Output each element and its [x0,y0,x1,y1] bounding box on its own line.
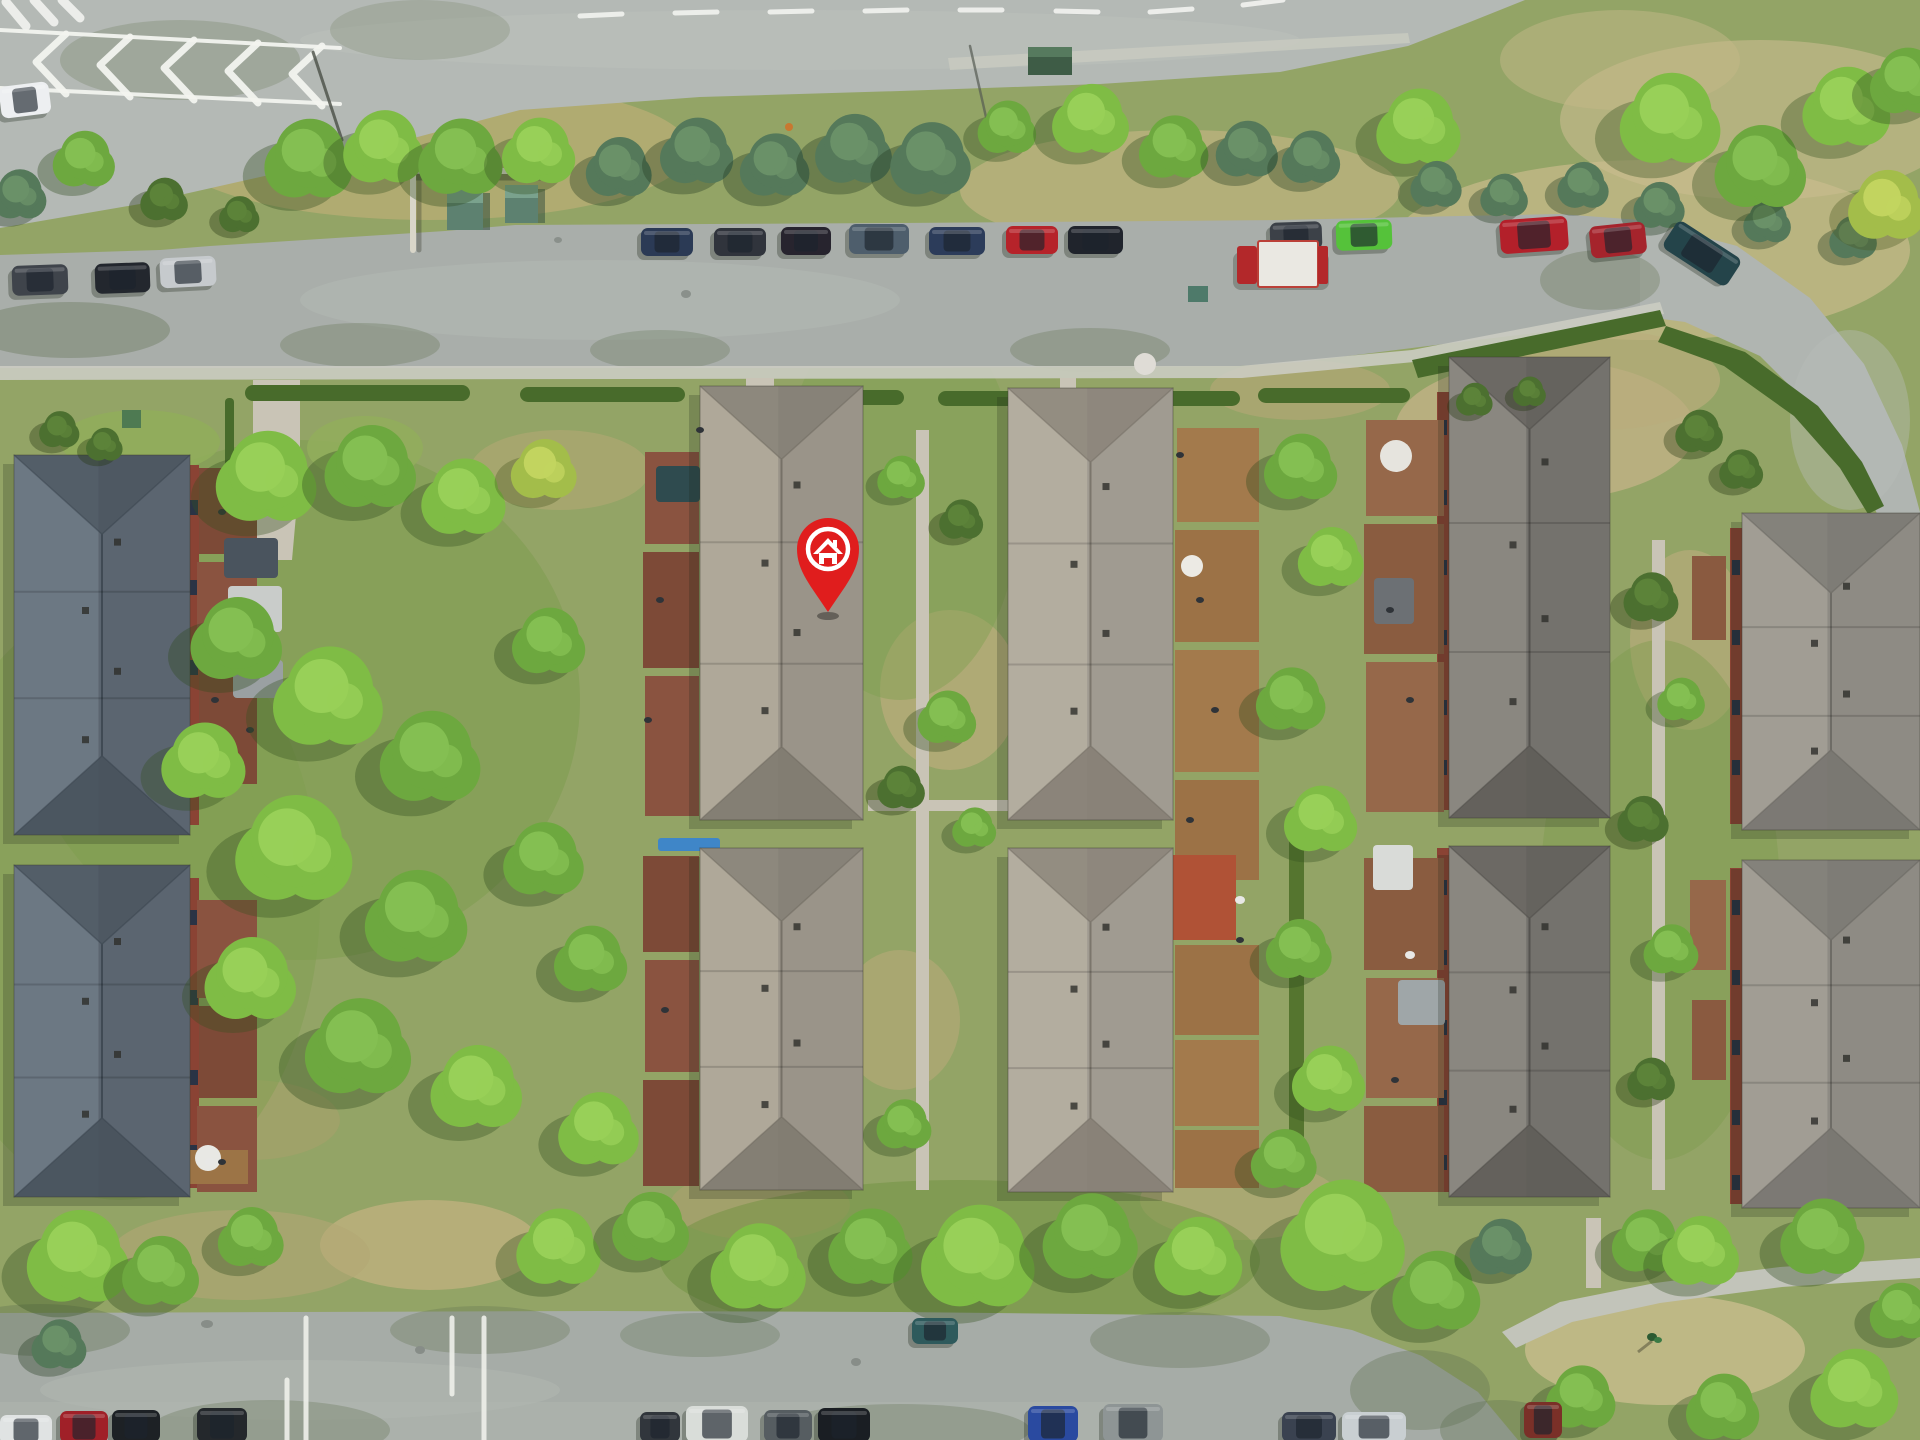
hedge [245,385,470,401]
roof-vent [82,736,89,743]
parked-car [1520,1402,1562,1440]
patio-umbrella [1134,353,1156,375]
utility-box [1188,286,1208,302]
roof-vent [1811,999,1818,1006]
roof-vent [1843,583,1850,590]
parked-car [777,227,831,259]
roof-vent [794,1040,801,1047]
roof-vent [82,607,89,614]
hedge [1258,388,1410,403]
tree-shadow-on-road [1090,1312,1270,1368]
parked-car [1338,1412,1406,1440]
townhouse-roof [997,848,1173,1201]
roof-vent [1510,986,1517,993]
roof-vent [1811,640,1818,647]
patio-canopy [1398,980,1445,1025]
utility-box [483,193,490,230]
parked-car [710,228,766,260]
townhouse-roof [689,848,863,1199]
roof-vent [794,629,801,636]
roof-vent [1542,615,1549,622]
patio-furniture [1386,607,1394,613]
parked-car [1099,1404,1163,1440]
roof-vent [1542,1043,1549,1050]
parked-car [7,264,68,300]
aerial-photo [0,0,1920,1440]
utility-box [1028,47,1072,57]
patio-canopy [1373,845,1413,890]
parked-car [814,1408,870,1440]
roof-vent [1510,541,1517,548]
roof-vent [1843,1055,1850,1062]
roof-vent [1510,698,1517,705]
deck [1692,556,1726,640]
patio-furniture [661,1007,669,1013]
dashed-lane-line [675,12,717,13]
patio-furniture [1406,697,1414,703]
window [190,1070,198,1085]
townhouse-roof [997,388,1173,829]
roof-vent [114,1051,121,1058]
manhole [201,1320,213,1328]
parked-car [636,1412,680,1440]
deck [1175,1040,1259,1126]
roof-vent [1843,937,1850,944]
parked-car [155,256,217,293]
patio-furniture [1176,452,1184,458]
parked-car [908,1318,958,1348]
patio-furniture [218,1159,226,1165]
patio-furniture [644,717,652,723]
parked-car [90,262,150,298]
patio-table [1235,896,1245,904]
parked-car [0,1415,52,1440]
roof-vent [1103,924,1110,931]
patio-furniture [1391,1077,1399,1083]
parked-car [1024,1406,1078,1440]
roof-vent [114,539,121,546]
deck [1177,428,1259,522]
patio-furniture [1211,707,1219,713]
dashed-lane-line [1056,11,1098,12]
deck [1692,1000,1726,1080]
dashed-lane-line [1150,9,1192,12]
deck [1175,530,1259,642]
roof-vent [1103,483,1110,490]
townhouse-roof [3,865,190,1206]
parked-car [108,1410,160,1440]
roof-vent [794,481,801,488]
roof-vent [82,1111,89,1118]
patio-table [1405,951,1415,959]
utility-box [122,410,141,428]
window [190,580,198,595]
parked-car [845,224,909,258]
aerial-scene [0,0,1920,1440]
parked-car [56,1411,108,1440]
patio-furniture [1196,597,1204,603]
patio-umbrella [1380,440,1412,472]
deck [1366,662,1444,812]
roof-vent [1510,1106,1517,1113]
patio-umbrella [1181,555,1203,577]
roof-vent [1542,458,1549,465]
roof-vent [762,1101,769,1108]
patio-canopy [1374,578,1414,624]
roof-vent [1843,691,1850,698]
patio-furniture [696,427,704,433]
tree-shadow-on-road [590,330,730,370]
parked-car [760,1410,812,1440]
roof-vent [1542,923,1549,930]
parked-car [682,1406,748,1440]
manhole [415,1346,425,1354]
dashed-lane-line [770,11,812,12]
delivery-truck [1233,241,1329,290]
parked-car [1064,226,1123,258]
patio-furniture [1186,817,1194,823]
roof-vent [762,707,769,714]
parked-car [1585,221,1648,263]
roof-vent [762,560,769,567]
manhole [554,237,562,243]
roof-vent [1103,630,1110,637]
patio-furniture [211,697,219,703]
parked-car [1495,216,1569,259]
roof-vent [114,938,121,945]
delivery-truck-part [1258,241,1318,287]
townhouse-roof [1438,357,1610,827]
roof-vent [794,923,801,930]
deck [1172,855,1236,940]
roof-vent [114,668,121,675]
roof-vent [1071,561,1078,568]
parked-car [1002,226,1058,258]
parked-car [193,1408,247,1440]
roof-vent [82,998,89,1005]
fire-hydrant [785,123,793,131]
hedge [520,387,685,402]
manhole [681,290,691,298]
patio-table [205,1158,215,1166]
window [190,910,198,925]
parked-car [1331,219,1392,255]
parked-car [637,228,693,260]
townhouse-roof [1731,860,1920,1217]
deck [1175,945,1259,1035]
roof-vent [1811,748,1818,755]
parked-car [1278,1412,1336,1440]
roof-vent [1103,1041,1110,1048]
hydrant [785,123,793,131]
patio-furniture [1236,937,1244,943]
roof-vent [1071,708,1078,715]
townhouse-roof [1731,513,1920,839]
roof-vent [1811,1118,1818,1125]
townhouse-roof [689,386,863,829]
tree-shadow-on-road [330,0,510,60]
dashed-lane-line [865,10,907,11]
roof-vent [1071,1103,1078,1110]
dashed-lane-line [580,14,622,16]
townhouse-roof [1438,846,1610,1206]
deck [1364,1106,1444,1192]
patio-furniture [656,597,664,603]
roof-vent [1071,986,1078,993]
delivery-truck-part [1237,246,1257,284]
utility-box [538,189,545,223]
patio-canopy [224,538,278,578]
roof-vent [762,985,769,992]
patio-umbrella [195,1145,221,1171]
tree-shadow-on-road [280,323,440,367]
parked-car [925,227,985,259]
manhole [851,1358,861,1366]
delivery-truck-part [1318,246,1328,284]
